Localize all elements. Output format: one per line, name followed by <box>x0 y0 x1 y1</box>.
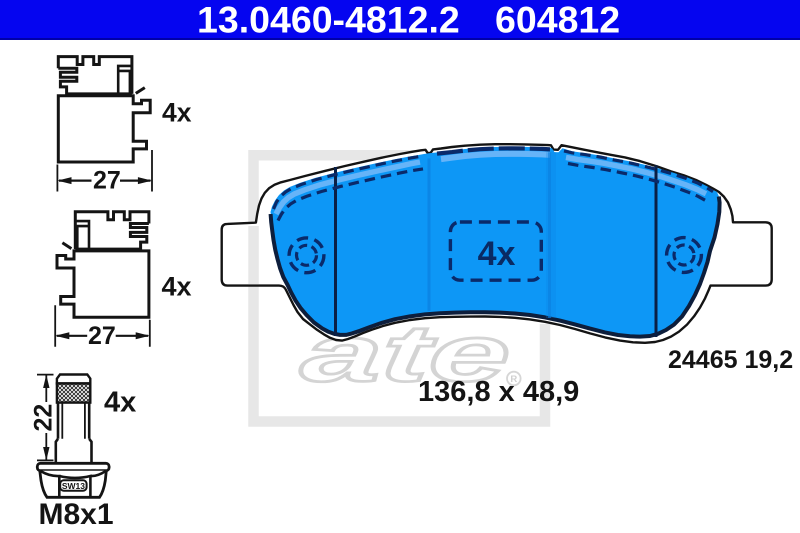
svg-text:4x: 4x <box>162 272 192 302</box>
svg-text:604812: 604812 <box>495 0 620 41</box>
svg-text:27: 27 <box>88 322 116 350</box>
svg-text:24465 19,2: 24465 19,2 <box>668 346 793 374</box>
svg-text:136,8 x 48,9: 136,8 x 48,9 <box>418 376 579 408</box>
svg-text:4x: 4x <box>162 98 192 128</box>
svg-text:4x: 4x <box>104 387 136 419</box>
svg-text:22: 22 <box>30 404 58 432</box>
svg-text:SW13: SW13 <box>62 481 85 491</box>
svg-text:13.0460-4812.2: 13.0460-4812.2 <box>197 0 460 41</box>
svg-text:27: 27 <box>93 167 121 195</box>
svg-text:4x: 4x <box>478 235 516 273</box>
svg-text:M8x1: M8x1 <box>39 498 114 531</box>
